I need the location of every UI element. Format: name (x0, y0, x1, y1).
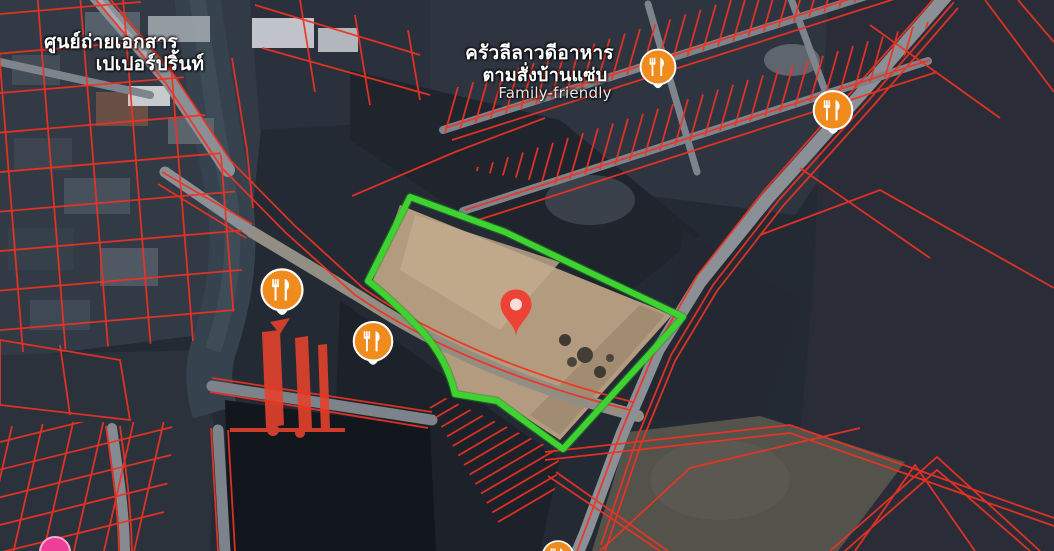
map-viewport[interactable]: ศูนย์ถ่ายเอกสาร เปเปอร์ปริ้นท์ ครัวลีลาว… (0, 0, 1054, 551)
restaurant-pin[interactable] (254, 264, 310, 330)
poi-label-copy-center-line2[interactable]: เปเปอร์ปริ้นท์ (60, 49, 240, 79)
selected-location-pin[interactable] (498, 288, 534, 338)
location-pin-icon (498, 288, 534, 338)
fork-knife-icon (538, 537, 578, 551)
restaurant-pin[interactable] (807, 86, 859, 148)
fork-knife-icon (254, 264, 310, 330)
fork-knife-icon (807, 86, 859, 148)
restaurant-pin[interactable] (347, 317, 399, 379)
fork-knife-icon (347, 317, 399, 379)
restaurant-pin[interactable] (538, 537, 578, 551)
poi-label-restaurant-line3: Family-friendly (470, 84, 640, 102)
